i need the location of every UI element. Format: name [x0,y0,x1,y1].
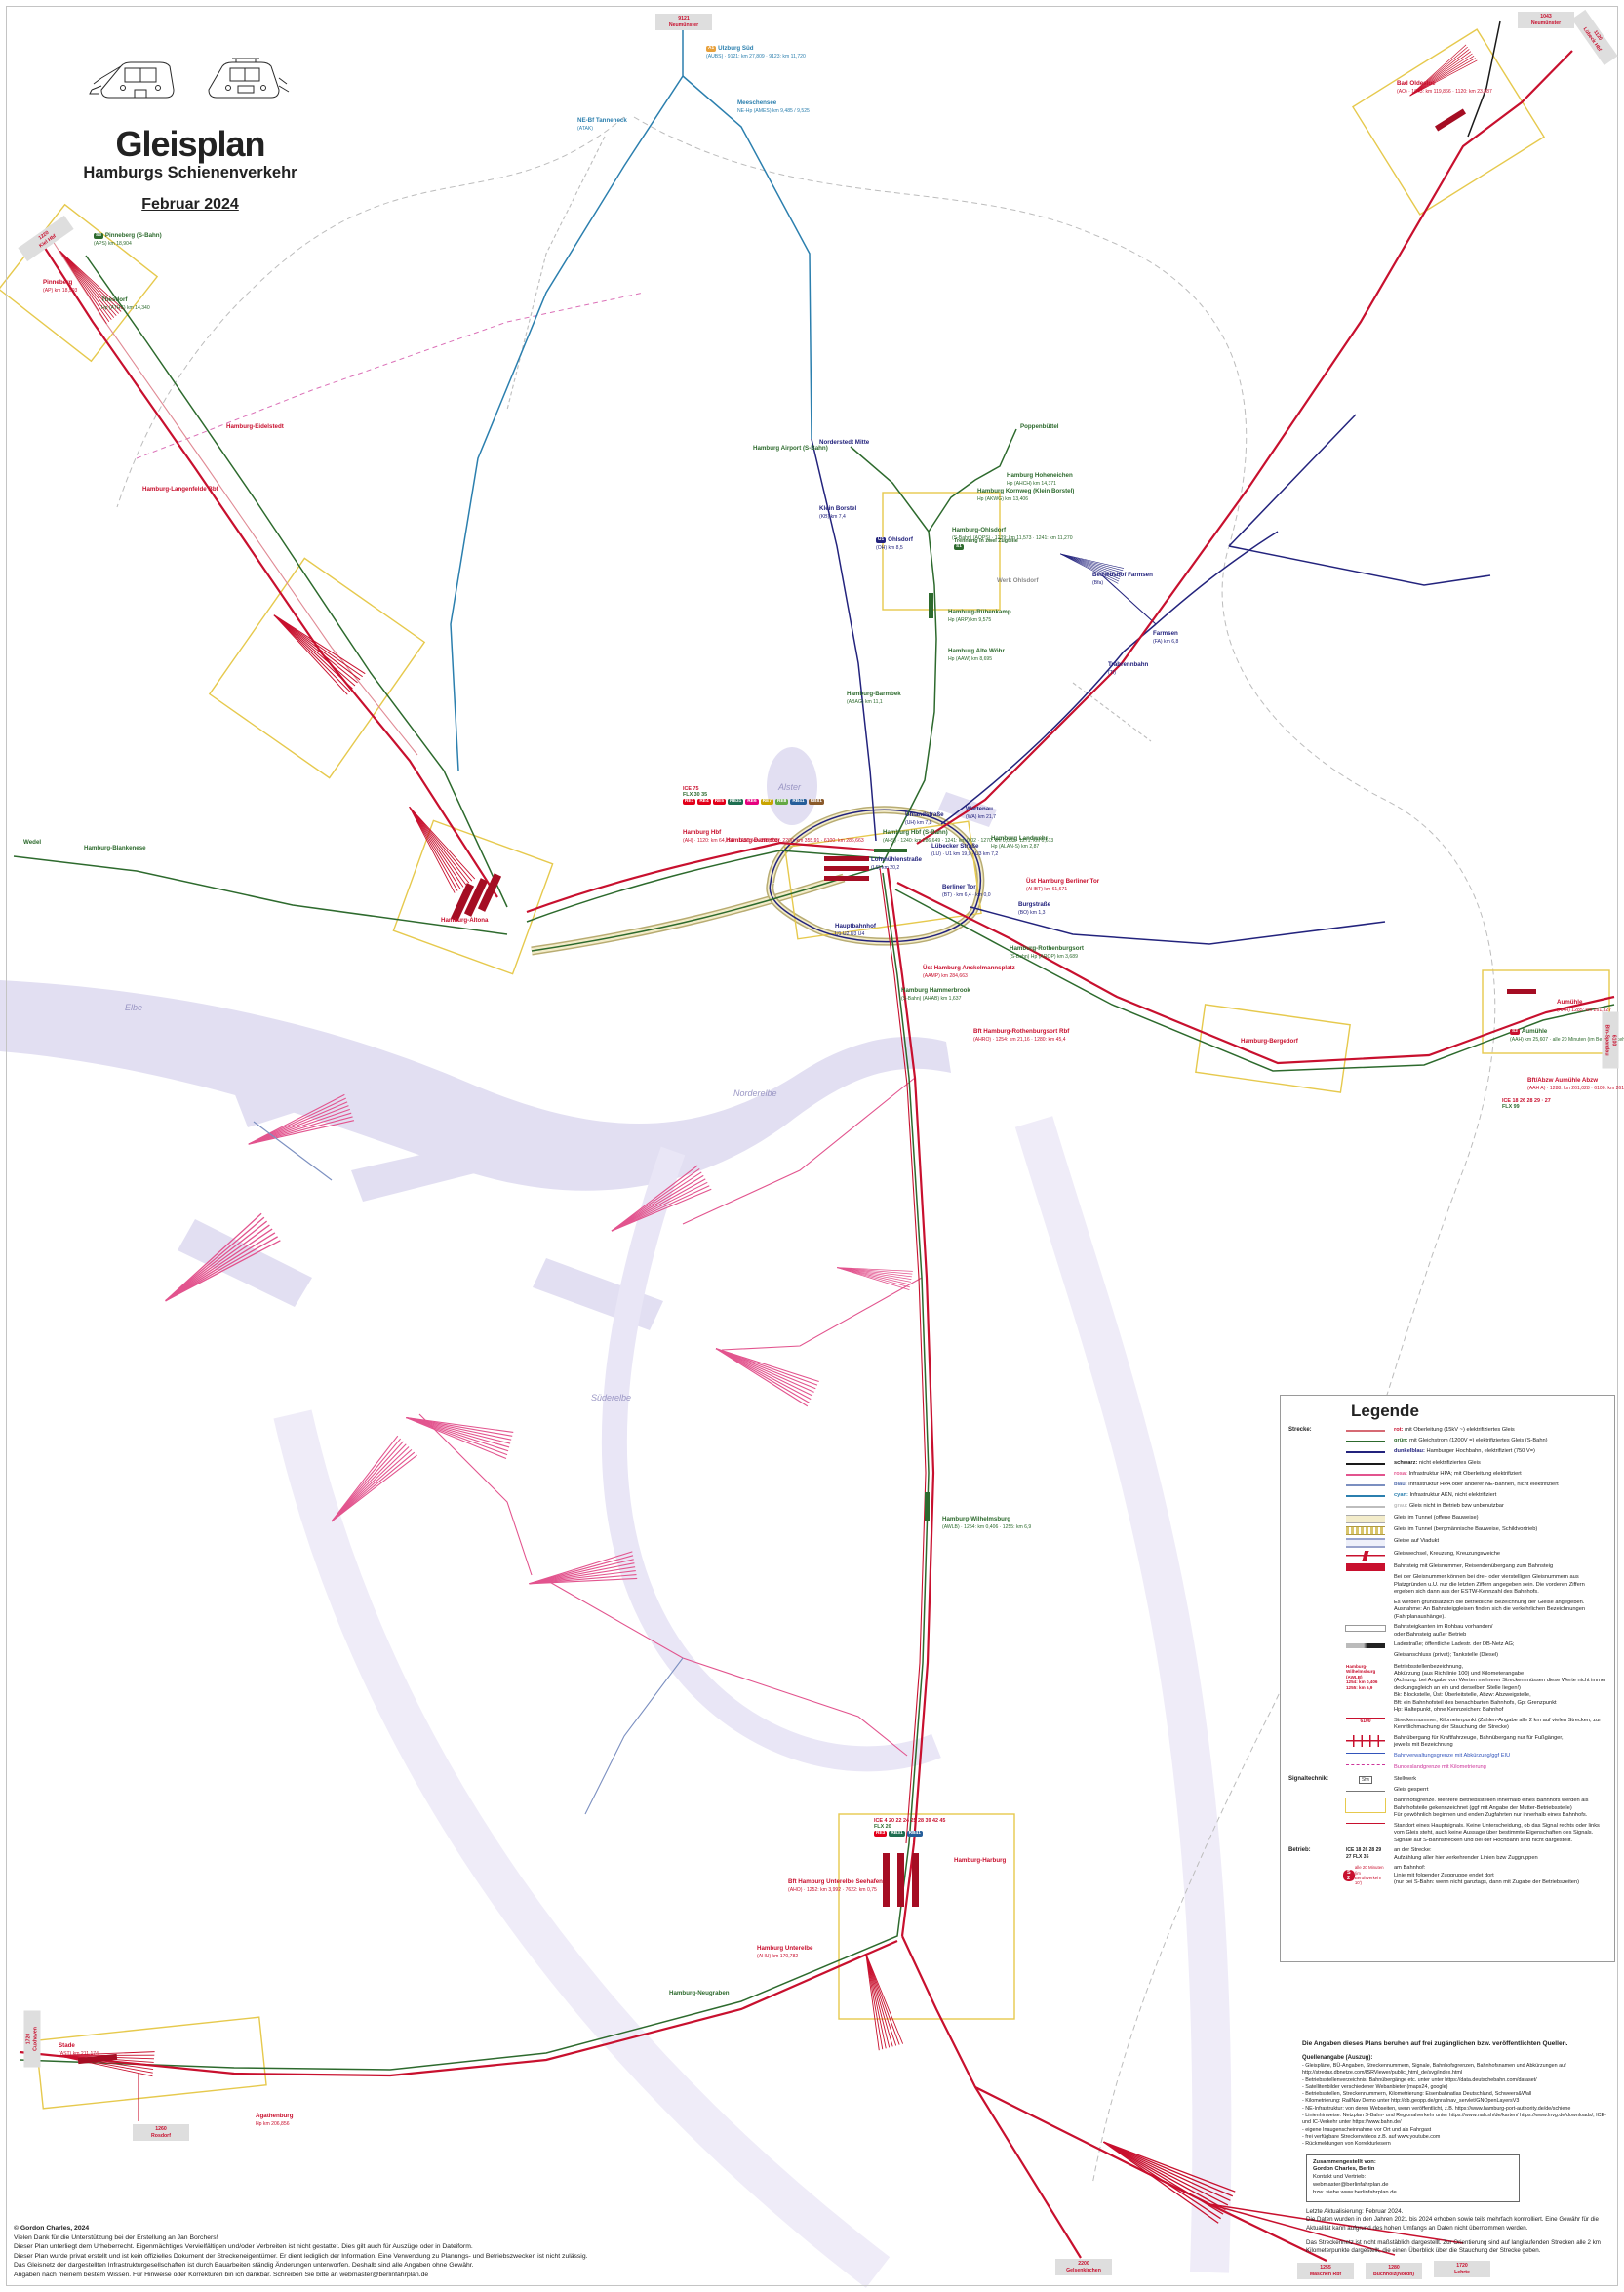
legend-swatch [1343,1503,1388,1511]
update-notes: Letzte Aktualisierung: Februar 2024. Die… [1306,2208,1608,2256]
legend-text: Bei der Gleisnummer können bei drei- ode… [1394,1574,1606,1596]
credit-line: webmaster@berlinfahrplan.de [1313,2182,1513,2190]
water-label: Süderelbe [591,1393,631,1403]
legend-text: Bahnsteigkanten im Rohbau vorhanden/ ode… [1394,1624,1493,1639]
source-item: - Betriebsstellen, Streckennummern, Kilo… [1302,2091,1616,2098]
legend-row: Gleis im Tunnel (offene Bauweise) [1288,1515,1606,1523]
legend-swatch-line-icon [1346,1474,1385,1476]
legend-text: schwarz: nicht elektrifiziertes Gleis [1394,1460,1481,1467]
legend-description: Gleisanschluss (privat); Tankstelle (Die… [1394,1652,1498,1658]
legend-description: Infrastruktur AKN, nicht elektrifiziert [1409,1492,1496,1498]
exit-box: 1260Rosdorf [133,2124,189,2141]
legend-swatch [1343,1787,1388,1795]
legend-swatch-stw-icon: Stw [1359,1776,1372,1784]
train-drawings-icon [88,29,293,119]
route-note: ICE 4 20 22 24 25 28 39 42 45FLX 20RE3RB… [874,1818,945,1837]
legend-swatch-signal-icon [1346,1823,1385,1832]
source-item: - Satellitenbilder verschiedener Webanbi… [1302,2084,1616,2091]
sources-list: - Gleispläne, BÜ-Angaben, Streckennummer… [1302,2063,1616,2149]
legend-swatch [1343,1753,1388,1761]
exit-destination: Rosdorf [134,2133,188,2140]
legend-swatch: Hamburg-Wilhelmsburg (AWLB) 1254: km 0,4… [1343,1664,1388,1691]
legend-row: Bahnverwaltungsgrenze mit Abkürzung/ggf … [1288,1753,1606,1761]
source-item: - NE-Infrastruktur: von deren Webseiten,… [1302,2106,1616,2113]
legend-text: Bahnhofsgrenze. Mehrere Betriebsstellen … [1394,1798,1606,1819]
legend-text: an der Strecke: Aufzählung aller hier ve… [1394,1847,1538,1862]
legend-swatch-bfg-icon [1345,1798,1386,1813]
exit-box: 1280Buchholz(Nordh) [1366,2263,1422,2279]
legend-text: rosa: Infrastruktur HPA; mit Oberleitung… [1394,1471,1522,1478]
legend-swatch [1343,1624,1388,1632]
line-badge: RB41 [790,799,806,805]
legend-box: Legende Strecke:rot: mit Oberleitung (15… [1280,1395,1615,1962]
exit-destination: Maschen Rbf [1298,2272,1353,2278]
legend-swatch-admin-icon [1346,1753,1385,1761]
legend-swatch [1343,1823,1388,1832]
update-paragraph: Das Streckennetz ist nicht maßstäblich d… [1306,2239,1608,2256]
footer-line: Angaben nach meinem bestem Wissen. Für H… [14,2271,1038,2280]
credit-line: Gordon Charles, Berlin [1313,2166,1513,2174]
legend-text: Gleis im Tunnel (bergmännische Bauweise,… [1394,1526,1537,1533]
legend-description: Gleis im Tunnel (bergmännische Bauweise,… [1394,1526,1537,1532]
line-badge: RE8 [775,799,788,805]
legend-group-label: Betrieb: [1288,1847,1343,1853]
legend-description: Betriebsstellenbezeichnung, Abkürzung (a… [1394,1664,1606,1713]
legend-row: Es werden grundsätzlich die betriebliche… [1288,1600,1606,1621]
legend-row: cyan: Infrastruktur AKN, nicht elektrifi… [1288,1492,1606,1500]
legend-swatch-line-icon [1346,1506,1385,1508]
line-badge: RB31 [728,799,743,805]
exit-box: 1720Lehrte [1434,2261,1490,2277]
legend-swatch [1343,1538,1388,1548]
footer-line: © Gordon Charles, 2024 [14,2224,1038,2233]
legend-description: am Bahnhof: Linie mit folgender Zuggrupp… [1394,1865,1579,1885]
footer-copyright: © Gordon Charles, 2024Vielen Dank für di… [14,2224,1038,2279]
exit-box: 1720Cuxhaven [24,2011,41,2068]
route-note-line: FLX 99 [1502,1104,1551,1110]
legend-text: Gleise auf Viadukt [1394,1538,1439,1545]
legend-row: Standort eines Hauptsignals. Keine Unter… [1288,1823,1606,1844]
legend-term: grün: [1394,1438,1409,1443]
legend-swatch-band-open-icon [1346,1515,1385,1523]
legend-swatch-cross-icon [1346,1551,1385,1561]
legend-row: Bundeslandgrenze mit Kilometrierung [1288,1764,1606,1773]
legend-swatch-pedge-icon [1345,1625,1386,1632]
legend-swatch [1343,1448,1388,1456]
legend-swatch [1343,1482,1388,1489]
legend-swatch-loading-icon [1346,1643,1385,1648]
source-item: - Betriebsstellenverzeichnis, Bahnübergä… [1302,2077,1616,2084]
legend-term: rot: [1394,1427,1405,1433]
legend-description: Bahnübergang für Kraftfahrzeuge, Bahnübe… [1394,1735,1564,1748]
water-label: Norderelbe [733,1088,777,1098]
route-note: ICE 18 26 28 29 · 27FLX 99 [1502,1098,1551,1111]
legend-row: rosa: Infrastruktur HPA; mit Oberleitung… [1288,1471,1606,1479]
legend-swatch [1343,1574,1388,1582]
legend-group-label: Strecke: [1288,1427,1343,1433]
legend-swatch [1343,1471,1388,1479]
exit-destination: Neumünster [656,22,711,29]
legend-text: Gleis im Tunnel (offene Bauweise) [1394,1515,1479,1521]
legend-text: Gleiswechsel, Kreuzung, Kreuzungsweiche [1394,1551,1500,1558]
exit-destination: Cuxhaven [32,2012,39,2067]
exit-box: 1043Neumünster [1518,12,1574,28]
footer-line: Dieser Plan wurde privat erstellt und is… [14,2252,1038,2262]
legend-row: S 2alle 20 Minuten (im Berufsverkehr 10'… [1288,1865,1606,1886]
credit-line: Kontakt und Vertrieb: [1313,2174,1513,2182]
legend-text: Bahnübergang für Kraftfahrzeuge, Bahnübe… [1394,1735,1564,1750]
legend-text: Gleis gesperrt [1394,1787,1428,1794]
legend-row: schwarz: nicht elektrifiziertes Gleis [1288,1460,1606,1468]
legend-text: cyan: Infrastruktur AKN, nicht elektrifi… [1394,1492,1496,1499]
exit-destination: Bln-Spandau [1604,1013,1611,1068]
route-note-badges: RE1RE4RE5RB31RE6RE7RE8RB41RB81 [683,799,826,805]
source-item: - Rückmeldungen von Korrekturlesern [1302,2141,1616,2148]
legend-description: nicht elektrifiziertes Gleis [1419,1460,1481,1466]
legend-swatch-line-icon [1346,1463,1385,1465]
legend-swatch-s2-icon: S 2 [1343,1870,1355,1881]
legend-term: rosa: [1394,1471,1409,1477]
exit-box: 1255Maschen Rbf [1297,2263,1354,2279]
legend-row: dunkelblau: Hamburger Hochbahn, elektrif… [1288,1448,1606,1456]
update-paragraph: Letzte Aktualisierung: Februar 2024. Die… [1306,2208,1608,2233]
legend-row: blau: Infrastruktur HPA oder anderer NE-… [1288,1482,1606,1489]
legend-text: Ladestraße; öffentliche Ladestr. der DB-… [1394,1641,1515,1648]
legend-description: Gleis gesperrt [1394,1787,1428,1793]
legend-title: Legende [1351,1402,1606,1421]
title-block: Gleisplan Hamburgs Schienenverkehr Febru… [68,29,312,214]
route-note: Trennung in zwei ZugteileS1 [954,538,1018,551]
exit-box: 9121Neumünster [655,14,712,30]
legend-swatch: 6100 [1343,1718,1388,1725]
legend-description: Bahnsteigkanten im Rohbau vorhanden/ ode… [1394,1624,1493,1637]
legend-text: dunkelblau: Hamburger Hochbahn, elektrif… [1394,1448,1535,1455]
line-badge: RE1 [683,799,695,805]
legend-swatch [1343,1735,1388,1747]
legend-description: Infrastruktur HPA oder anderer NE-Bahnen… [1408,1482,1559,1487]
source-item: - eigene Inaugenscheinnahme vor Ort und … [1302,2127,1616,2134]
legend-text: Bundeslandgrenze mit Kilometrierung [1394,1764,1486,1771]
legend-swatch [1343,1563,1388,1571]
legend-swatch-exst-icon: Hamburg-Wilhelmsburg (AWLB) 1254: km 0,4… [1346,1664,1385,1691]
legend-row: Gleiswechsel, Kreuzung, Kreuzungsweiche [1288,1551,1606,1561]
legend-description: mit Oberleitung (15kV ~) elektrifizierte… [1405,1427,1515,1433]
sources-block: Die Angaben dieses Plans beruhen auf fre… [1302,2040,1616,2262]
exit-destination: Buchholz(Nordh) [1367,2272,1421,2278]
line-badge: RB41 [907,1831,923,1837]
legend-row: grau: Gleis nicht in Betrieb bzw unbenut… [1288,1503,1606,1511]
legend-description: Bei der Gleisnummer können bei drei- ode… [1394,1574,1585,1595]
legend-swatch-line-icon [1346,1495,1385,1497]
legend-description: Bahnverwaltungsgrenze mit Abkürzung/ggf … [1394,1753,1510,1759]
legend-swatch: S 2alle 20 Minuten (im Berufsverkehr 10'… [1343,1865,1388,1885]
legend-row: Gleisanschluss (privat); Tankstelle (Die… [1288,1652,1606,1660]
legend-description: Gleis im Tunnel (offene Bauweise) [1394,1515,1479,1521]
credit-box: Zusammengestellt von:Gordon Charles, Ber… [1306,2154,1520,2202]
legend-swatch [1343,1526,1388,1535]
credit-line: Zusammengestellt von: [1313,2159,1513,2167]
legend-swatch [1343,1652,1388,1660]
water-label: Elbe [125,1003,142,1012]
legend-swatch-siding-icon [1346,1652,1385,1660]
legend-row: 6100Streckennummer; Kilometerpunkt (Zahl… [1288,1718,1606,1732]
exit-destination: Neumünster [1519,20,1573,27]
legend-swatch [1343,1764,1388,1773]
legend-description: Gleis nicht in Betrieb bzw unbenutzbar [1409,1503,1504,1509]
legend-row: Bahnübergang für Kraftfahrzeuge, Bahnübe… [1288,1735,1606,1750]
legend-swatch-state-icon [1346,1764,1385,1773]
edition-date: Februar 2024 [68,196,312,214]
legend-swatch [1343,1438,1388,1445]
line-badge: S1 [954,544,964,550]
legend-swatch [1343,1515,1388,1523]
legend-text: Betriebsstellenbezeichnung, Abkürzung (a… [1394,1664,1606,1715]
source-item: - Kilometrierung: RailNav Demo unter htt… [1302,2098,1616,2105]
legend-row: Bahnsteigkanten im Rohbau vorhanden/ ode… [1288,1624,1606,1639]
legend-text: Bahnsteig mit Gleisnummer, Reisendenüber… [1394,1563,1553,1570]
legend-row: Gleis gesperrt [1288,1787,1606,1795]
legend-swatch-note: alle 20 Minuten (im Berufsverkehr 10') [1355,1865,1388,1885]
legend-text: Stellwerk [1394,1776,1416,1783]
legend-swatch-bue-icon [1346,1735,1385,1747]
legend-text: Gleisanschluss (privat); Tankstelle (Die… [1394,1652,1498,1659]
legend-term: grau: [1394,1503,1409,1509]
legend-description: Standort eines Hauptsignals. Keine Unter… [1394,1823,1600,1843]
legend-text: Standort eines Hauptsignals. Keine Unter… [1394,1823,1606,1844]
legend-description: mit Gleichstrom (1200V =) elektrifiziert… [1409,1438,1547,1443]
page-title: Gleisplan [68,126,312,163]
legend-description: Hamburger Hochbahn, elektrifiziert (750 … [1427,1448,1535,1454]
route-note: ICE 75FLX 30 35RE1RE4RE5RB31RE6RE7RE8RB4… [683,786,826,805]
legend-description: Es werden grundsätzlich die betriebliche… [1394,1600,1585,1620]
line-badge: RE5 [713,799,726,805]
legend-group-label: Signaltechnik: [1288,1776,1343,1782]
legend-swatch-line-icon [1346,1451,1385,1453]
route-note-badges: S1 [954,544,1018,550]
exit-box: 2200Gelsenkirchen [1055,2259,1112,2275]
legend-row: Bahnhofsgrenze. Mehrere Betriebsstellen … [1288,1798,1606,1819]
legend-row: Gleis im Tunnel (bergmännische Bauweise,… [1288,1526,1606,1535]
exit-destination: Gelsenkirchen [1056,2268,1111,2274]
exit-destination: Lehrte [1435,2270,1489,2276]
legend-swatch-band-via-icon [1346,1538,1385,1548]
footer-line: Dieser Plan unterliegt dem Urheberrecht.… [14,2242,1038,2252]
legend-row: Bahnsteig mit Gleisnummer, Reisendenüber… [1288,1563,1606,1571]
legend-text: Streckennummer; Kilometerpunkt (Zahlen-A… [1394,1718,1606,1732]
page-subtitle: Hamburgs Schienenverkehr [68,164,312,182]
legend-description: Streckennummer; Kilometerpunkt (Zahlen-A… [1394,1718,1601,1730]
source-item: - frei verfügbare Streckenvideos z.B. au… [1302,2134,1616,2141]
line-badge: RE7 [761,799,773,805]
legend-swatch [1343,1641,1388,1649]
legend-swatch [1343,1600,1388,1607]
legend-row: Signaltechnik:StwStellwerk [1288,1776,1606,1784]
legend-row: Ladestraße; öffentliche Ladestr. der DB-… [1288,1641,1606,1649]
legend-text: Bahnverwaltungsgrenze mit Abkürzung/ggf … [1394,1753,1510,1759]
legend-description: Gleiswechsel, Kreuzung, Kreuzungsweiche [1394,1551,1500,1557]
legend-text: Es werden grundsätzlich die betriebliche… [1394,1600,1606,1621]
legend-rows: Strecke:rot: mit Oberleitung (15kV ~) el… [1288,1427,1606,1886]
footer-line: Vielen Dank für die Unterstützung bei de… [14,2233,1038,2243]
legend-term: schwarz: [1394,1460,1419,1466]
exit-line-number: 6100 [1610,1013,1617,1068]
legend-row: Bei der Gleisnummer können bei drei- ode… [1288,1574,1606,1596]
legend-swatch-blocked-icon [1346,1791,1385,1792]
legend-description: Gleise auf Viadukt [1394,1538,1439,1544]
legend-swatch-band-mined-icon [1346,1526,1385,1535]
legend-row: Hamburg-Wilhelmsburg (AWLB) 1254: km 0,4… [1288,1664,1606,1715]
legend-swatch [1343,1798,1388,1813]
legend-row: grün: mit Gleichstrom (1200V =) elektrif… [1288,1438,1606,1445]
legend-description: Ladestraße; öffentliche Ladestr. der DB-… [1394,1641,1515,1647]
legend-swatch [1343,1427,1388,1435]
line-badge: RE4 [697,799,710,805]
legend-swatch [1343,1460,1388,1468]
legend-row: Betrieb:ICE 18 26 28 29 27 FLX 35an der … [1288,1847,1606,1862]
legend-description: an der Strecke: Aufzählung aller hier ve… [1394,1847,1538,1860]
legend-swatch-snr-icon: 6100 [1346,1718,1385,1724]
line-badge: RB31 [889,1831,904,1837]
sources-subheading: Quellenangabe (Auszug): [1302,2054,1616,2062]
legend-swatch-lines-icon: ICE 18 26 28 29 27 FLX 35 [1346,1847,1385,1860]
line-badge: RB81 [809,799,824,805]
legend-text: grau: Gleis nicht in Betrieb bzw unbenut… [1394,1503,1504,1510]
legend-term: blau: [1394,1482,1408,1487]
legend-term: cyan: [1394,1492,1409,1498]
legend-term: dunkelblau: [1394,1448,1427,1454]
legend-description: Bahnsteig mit Gleisnummer, Reisendenüber… [1394,1563,1553,1569]
legend-row: Strecke:rot: mit Oberleitung (15kV ~) el… [1288,1427,1606,1435]
line-badge: RE3 [874,1831,887,1837]
legend-description: Stellwerk [1394,1776,1416,1782]
legend-swatch-platform-icon [1346,1563,1385,1571]
route-note-badges: RE3RB31RB41 [874,1831,945,1837]
legend-text: am Bahnhof: Linie mit folgender Zuggrupp… [1394,1865,1579,1886]
credit-line: bzw. siehe www.berlinfahrplan.de [1313,2190,1513,2197]
line-badge: RE6 [745,799,758,805]
sources-heading: Die Angaben dieses Plans beruhen auf fre… [1302,2040,1616,2049]
legend-description: Bahnhofsgrenze. Mehrere Betriebsstellen … [1394,1798,1589,1818]
legend-swatch-line-icon [1346,1441,1385,1442]
legend-swatch-line-icon [1346,1484,1385,1486]
legend-swatch [1343,1492,1388,1500]
footer-line: Das Gleisnetz der dargestellten Infrastr… [14,2261,1038,2271]
source-item: - Gleispläne, BÜ-Angaben, Streckennummer… [1302,2063,1616,2077]
legend-swatch-line-icon [1346,1430,1385,1432]
legend-description: Bundeslandgrenze mit Kilometrierung [1394,1764,1486,1770]
legend-swatch: ICE 18 26 28 29 27 FLX 35 [1343,1847,1388,1860]
legend-text: blau: Infrastruktur HPA oder anderer NE-… [1394,1482,1559,1488]
legend-description: Infrastruktur HPA; mit Oberleitung elekt… [1409,1471,1522,1477]
exit-box: 6100Bln-Spandau [1603,1012,1619,1069]
legend-text: grün: mit Gleichstrom (1200V =) elektrif… [1394,1438,1548,1444]
legend-text: rot: mit Oberleitung (15kV ~) elektrifiz… [1394,1427,1515,1434]
legend-swatch: Stw [1343,1776,1388,1784]
legend-row: Gleise auf Viadukt [1288,1538,1606,1548]
legend-swatch [1343,1551,1388,1561]
source-item: - Linienhinweise: Netzplan S-Bahn- und R… [1302,2113,1616,2127]
